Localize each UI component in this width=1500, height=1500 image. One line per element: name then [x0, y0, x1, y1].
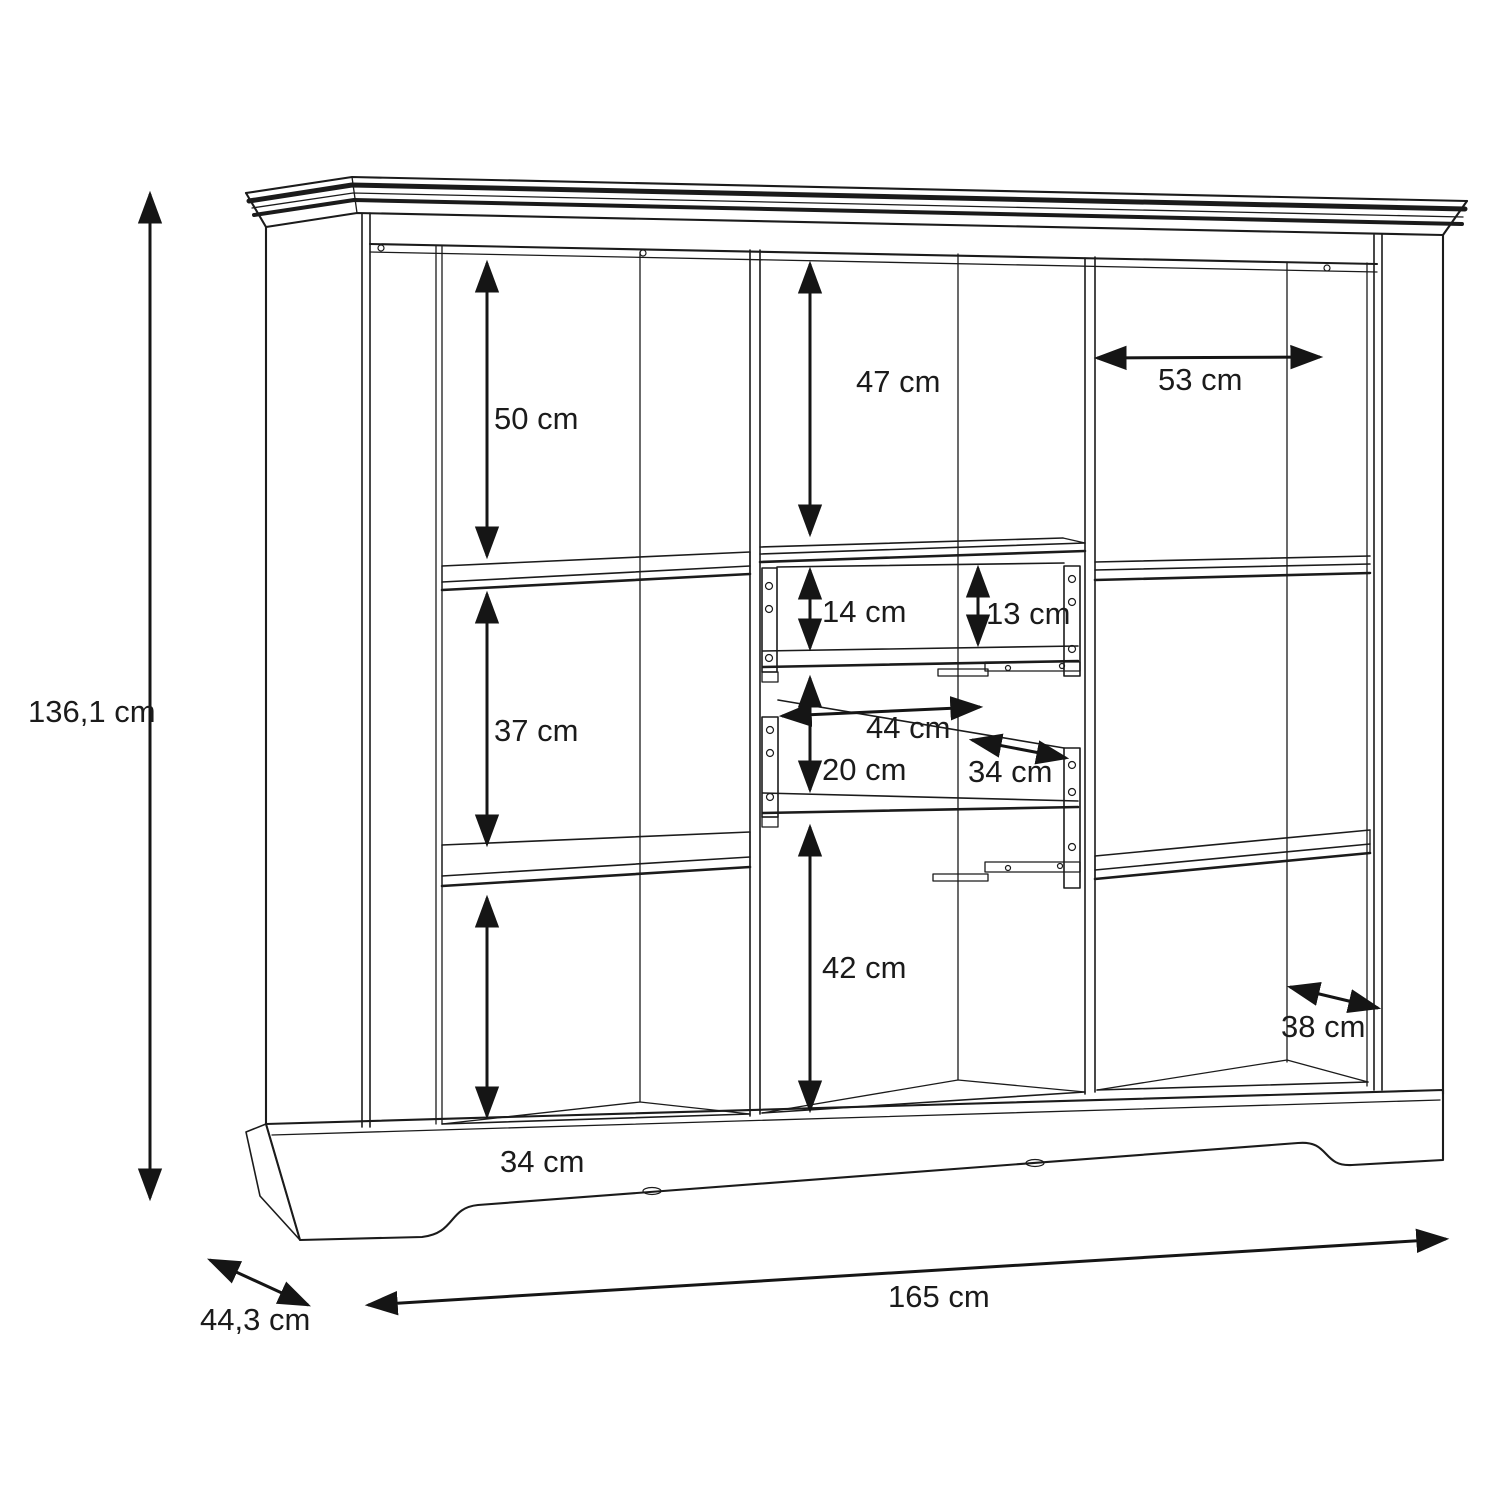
dim-label-center-top: 47 cm — [856, 364, 940, 399]
top-rail — [370, 244, 1377, 272]
slide-roller — [1006, 866, 1011, 871]
shelf-front-top-edge — [1095, 564, 1370, 570]
shelf-front-top-edge — [442, 566, 750, 582]
dim-label-drawer-upper-front: 14 cm — [822, 594, 906, 629]
screw-icon — [1069, 762, 1076, 769]
dim-label-drawer-upper-clear: 13 cm — [986, 596, 1070, 631]
screw-icon — [767, 750, 774, 757]
drawer-bottom-back-edge — [763, 793, 1078, 801]
dim-label-drawer-lower-width: 44 cm — [866, 710, 950, 745]
shelf-front-bottom-edge — [442, 867, 750, 886]
plinth-top-reveal-line — [272, 1100, 1440, 1135]
shelf-back-edge — [1095, 556, 1370, 562]
drawer-back-panel-top-edge — [777, 563, 1064, 567]
floor-perspective-edge — [1287, 1060, 1368, 1082]
drawer-slide-plate-left — [762, 717, 778, 817]
cornice-right-edge — [1443, 201, 1467, 235]
slide-rail-hook-left — [762, 672, 778, 682]
dim-label-left-middle: 37 cm — [494, 713, 578, 748]
slide-rail-right-inner — [933, 874, 988, 881]
cornice-bottom-edge — [266, 213, 1443, 235]
cornice-corner-seam — [352, 177, 357, 213]
interior-top-edge — [370, 244, 1377, 264]
shelf-front-bottom-edge — [442, 574, 750, 590]
dim-label-drawer-lower-depth: 34 cm — [968, 754, 1052, 789]
dim-label-left-bottom: 34 cm — [500, 1144, 584, 1179]
slide-roller — [1058, 864, 1063, 869]
wall-clip-mark — [1324, 265, 1330, 271]
dim-label-right-depth: 38 cm — [1281, 1009, 1365, 1044]
right-column-shelves — [1095, 556, 1370, 879]
drawer-bottom-front-edge — [763, 807, 1078, 813]
cabinet-drawing — [246, 177, 1467, 1240]
screw-icon — [1069, 789, 1076, 796]
cabinet-dimension-drawing: 136,1 cm 50 cm 37 cm 34 cm 47 cm 14 cm 1… — [0, 0, 1500, 1500]
drawer-slide-plate-left — [762, 568, 777, 672]
cornice — [246, 177, 1467, 235]
dim-label-center-bottom: 42 cm — [822, 950, 906, 985]
dim-label-right-width: 53 cm — [1158, 362, 1242, 397]
wall-clip-mark — [378, 245, 384, 251]
shelf-front-bottom-edge — [1095, 573, 1370, 580]
shelf-back-edge — [1095, 830, 1370, 856]
shelf-front-top-edge — [442, 857, 750, 876]
dim-label-height: 136,1 cm — [28, 694, 156, 729]
slide-roller — [1006, 666, 1011, 671]
slide-rail-right — [985, 862, 1080, 872]
dimension-drawing-canvas: 136,1 cm 50 cm 37 cm 34 cm 47 cm 14 cm 1… — [0, 0, 1500, 1500]
wall-clip-mark — [640, 250, 646, 256]
side-frames — [266, 213, 1443, 1127]
dim-label-left-top: 50 cm — [494, 401, 578, 436]
screw-icon — [1069, 576, 1076, 583]
depth-arrow — [210, 1260, 308, 1305]
right-width-arrow — [1097, 357, 1320, 358]
dim-label-depth: 44,3 cm — [200, 1302, 310, 1337]
center-column-shelf — [760, 538, 1085, 562]
dim-label-width: 165 cm — [888, 1279, 990, 1314]
screw-icon — [767, 727, 774, 734]
screw-icon — [766, 606, 773, 613]
screw-icon — [766, 583, 773, 590]
slide-rail-hook-left — [762, 817, 778, 827]
screw-icon — [766, 655, 773, 662]
plinth-left-face — [246, 1124, 300, 1240]
screw-icon — [767, 794, 774, 801]
shelf-corner-connector — [1063, 538, 1085, 543]
dimension-arrows — [150, 194, 1446, 1305]
dim-label-drawer-lower-front: 20 cm — [822, 752, 906, 787]
right-depth-arrow — [1290, 987, 1378, 1008]
screw-icon — [1069, 844, 1076, 851]
slide-rail-right-inner — [938, 669, 988, 676]
plinth — [246, 1090, 1443, 1240]
floor-perspective-edge — [958, 1080, 1085, 1092]
